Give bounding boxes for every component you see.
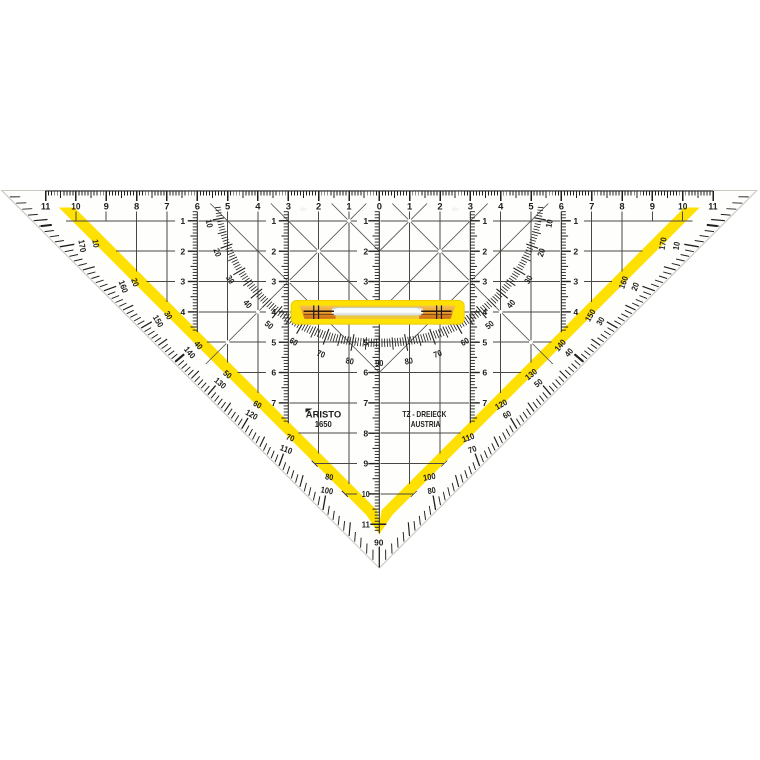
svg-text:8: 8 — [363, 428, 368, 438]
svg-text:7: 7 — [164, 201, 169, 212]
svg-text:4: 4 — [255, 201, 261, 212]
svg-text:1650: 1650 — [315, 419, 332, 429]
svg-text:2: 2 — [437, 201, 442, 212]
svg-text:2: 2 — [363, 246, 368, 256]
svg-text:1: 1 — [363, 216, 368, 226]
svg-text:1: 1 — [271, 216, 276, 226]
svg-text:3: 3 — [468, 201, 473, 212]
svg-text:1: 1 — [346, 201, 351, 212]
svg-text:11: 11 — [362, 519, 370, 529]
svg-text:1: 1 — [573, 216, 578, 226]
svg-text:10: 10 — [71, 201, 80, 212]
svg-text:ARISTO: ARISTO — [306, 409, 342, 419]
svg-text:3: 3 — [363, 277, 368, 287]
svg-text:9: 9 — [650, 201, 655, 212]
svg-text:2: 2 — [573, 246, 578, 256]
svg-text:6: 6 — [482, 368, 487, 378]
svg-text:9: 9 — [363, 459, 368, 469]
svg-text:6: 6 — [559, 201, 564, 212]
svg-text:3: 3 — [286, 201, 291, 212]
svg-text:3: 3 — [180, 277, 185, 287]
svg-text:7: 7 — [363, 398, 368, 408]
svg-text:5: 5 — [528, 201, 533, 212]
svg-text:5: 5 — [482, 337, 487, 347]
svg-text:7: 7 — [589, 201, 594, 212]
svg-text:TZ - DREIECK: TZ - DREIECK — [402, 409, 446, 419]
svg-text:2: 2 — [482, 246, 487, 256]
svg-text:AUSTRIA: AUSTRIA — [411, 419, 441, 429]
svg-text:4: 4 — [498, 201, 504, 212]
svg-text:3: 3 — [573, 277, 578, 287]
svg-text:8: 8 — [134, 201, 139, 212]
svg-text:7: 7 — [271, 398, 276, 408]
svg-text:5: 5 — [271, 337, 276, 347]
svg-text:6: 6 — [195, 201, 200, 212]
svg-text:6: 6 — [363, 368, 368, 378]
svg-text:5: 5 — [225, 201, 230, 212]
svg-text:7: 7 — [482, 398, 487, 408]
svg-text:10: 10 — [362, 489, 370, 499]
svg-text:11: 11 — [708, 201, 717, 212]
svg-text:6: 6 — [271, 368, 276, 378]
svg-text:8: 8 — [619, 201, 624, 212]
svg-text:2: 2 — [316, 201, 321, 212]
svg-text:9: 9 — [104, 201, 109, 212]
svg-text:1: 1 — [482, 216, 487, 226]
svg-text:4: 4 — [180, 307, 185, 317]
svg-text:4: 4 — [573, 307, 578, 317]
svg-text:1: 1 — [180, 216, 185, 226]
svg-text:0: 0 — [377, 201, 382, 212]
svg-text:3: 3 — [482, 277, 487, 287]
svg-text:90: 90 — [375, 358, 383, 368]
svg-text:90: 90 — [374, 538, 384, 548]
svg-text:10: 10 — [678, 201, 687, 212]
svg-text:2: 2 — [180, 246, 185, 256]
svg-text:2: 2 — [271, 246, 276, 256]
svg-text:1: 1 — [407, 201, 412, 212]
svg-text:3: 3 — [271, 277, 276, 287]
svg-text:11: 11 — [41, 201, 50, 212]
